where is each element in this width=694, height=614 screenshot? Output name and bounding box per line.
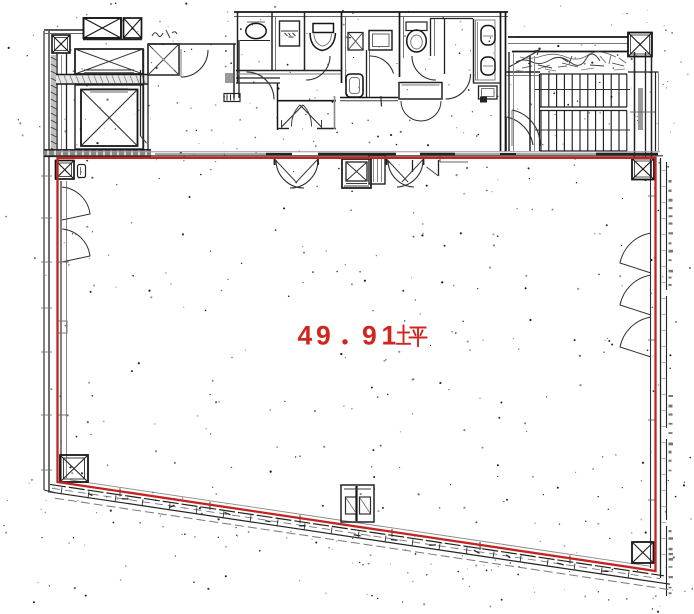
svg-text:1: 1 bbox=[382, 321, 397, 351]
svg-text:4: 4 bbox=[298, 321, 313, 351]
svg-text:9: 9 bbox=[362, 321, 377, 351]
svg-text:9: 9 bbox=[316, 321, 331, 351]
